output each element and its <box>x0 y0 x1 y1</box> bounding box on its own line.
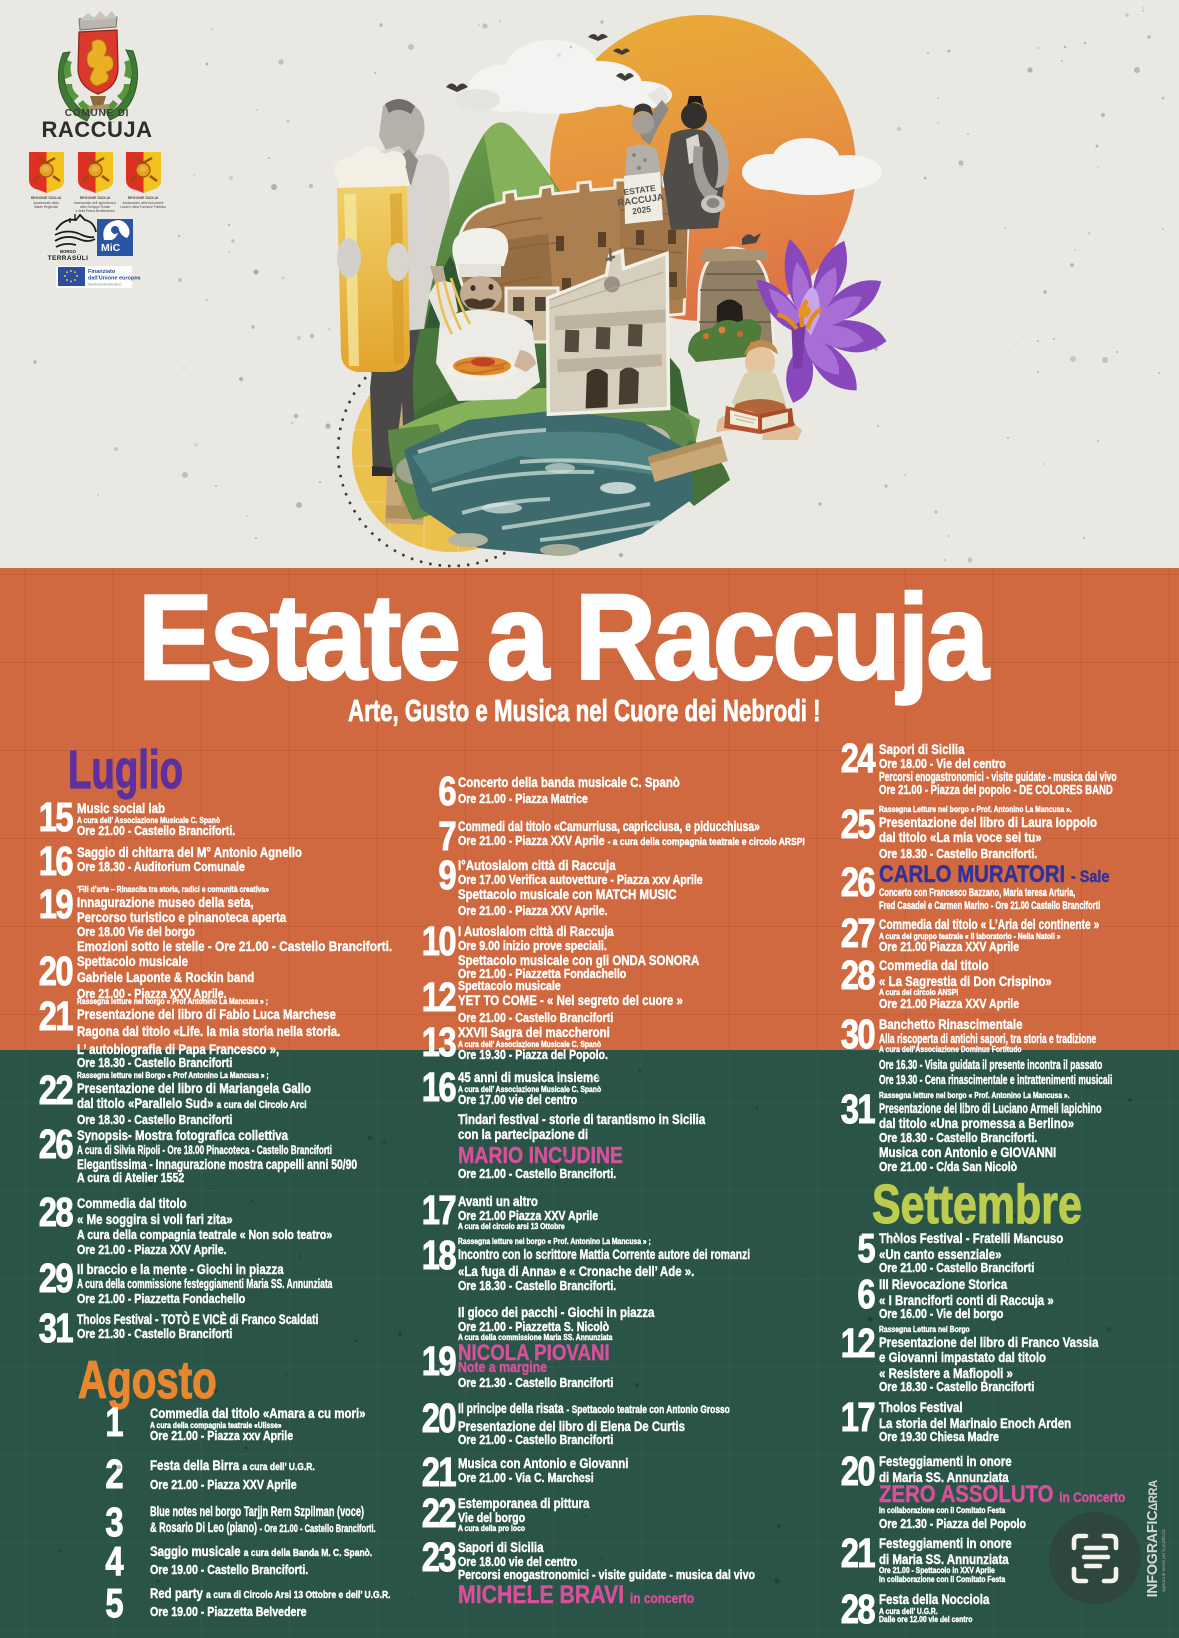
svg-text:TERRASÙLI: TERRASÙLI <box>48 253 89 262</box>
svg-text:REGIONE SICILIA: REGIONE SICILIA <box>128 196 159 200</box>
svg-text:Finanziato: Finanziato <box>88 269 116 275</box>
svg-text:REGIONE SICILIA: REGIONE SICILIA <box>80 196 111 200</box>
svg-text:Salute Regionale: Salute Regionale <box>34 205 59 209</box>
svg-text:MiC: MiC <box>101 242 121 254</box>
svg-text:e della Pesca Mediterranea: e della Pesca Mediterranea <box>76 209 115 213</box>
svg-text:BORGO: BORGO <box>60 249 77 254</box>
svg-text:Locali e della Funzione Pubbli: Locali e della Funzione Pubblica <box>120 205 166 209</box>
svg-text:NextGenerationEU: NextGenerationEU <box>88 282 122 287</box>
svg-text:RACCUJA: RACCUJA <box>41 117 152 142</box>
svg-text:agenzia di servizi per la pubb: agenzia di servizi per la pubblicità <box>1161 1529 1166 1592</box>
svg-text:REGIONE SICILIA: REGIONE SICILIA <box>31 196 62 200</box>
svg-text:INFOGRAFICΔRRA: INFOGRAFICΔRRA <box>1145 1480 1161 1597</box>
